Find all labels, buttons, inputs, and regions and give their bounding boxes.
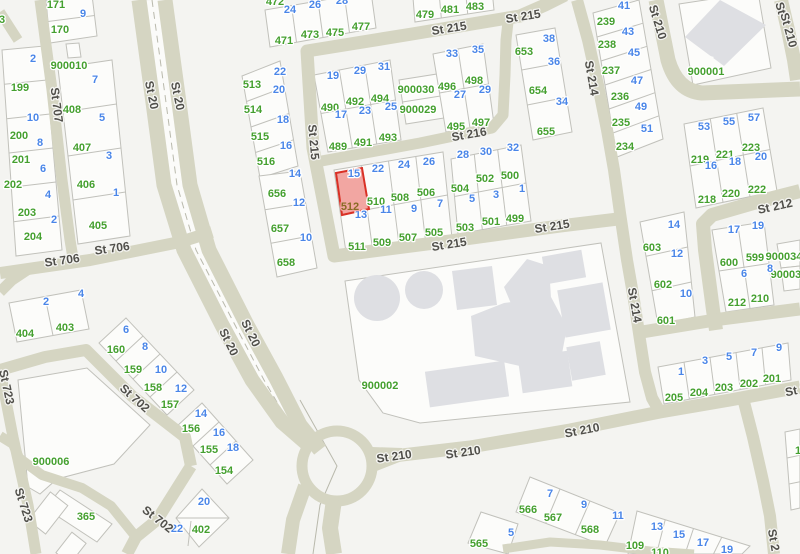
svg-text:203: 203 xyxy=(18,207,36,219)
svg-text:28: 28 xyxy=(457,149,469,161)
svg-text:205: 205 xyxy=(665,392,683,404)
svg-text:159: 159 xyxy=(124,364,142,376)
svg-text:11: 11 xyxy=(612,510,624,522)
svg-text:473: 473 xyxy=(301,29,319,41)
svg-text:1: 1 xyxy=(795,445,800,457)
svg-text:568: 568 xyxy=(581,524,599,536)
svg-text:14: 14 xyxy=(289,168,302,180)
svg-text:900029: 900029 xyxy=(400,104,437,116)
svg-text:509: 509 xyxy=(373,237,391,249)
svg-text:38: 38 xyxy=(543,33,555,45)
svg-text:16: 16 xyxy=(213,427,225,439)
svg-text:32: 32 xyxy=(507,142,519,154)
svg-text:511: 511 xyxy=(348,241,366,253)
svg-text:600: 600 xyxy=(720,257,738,269)
svg-text:599: 599 xyxy=(746,252,764,264)
svg-text:109: 109 xyxy=(626,540,644,552)
svg-text:7: 7 xyxy=(547,488,553,500)
svg-text:1: 1 xyxy=(113,187,119,199)
svg-text:3: 3 xyxy=(106,150,112,162)
svg-text:203: 203 xyxy=(715,382,733,394)
svg-text:26: 26 xyxy=(309,0,321,11)
svg-text:1: 1 xyxy=(678,366,684,378)
svg-text:19: 19 xyxy=(327,70,339,82)
svg-text:29: 29 xyxy=(354,65,366,77)
svg-text:25: 25 xyxy=(385,101,397,113)
svg-text:12: 12 xyxy=(293,197,305,209)
svg-text:6: 6 xyxy=(40,163,46,175)
svg-text:481: 481 xyxy=(441,4,459,16)
svg-text:3: 3 xyxy=(702,355,708,367)
svg-text:218: 218 xyxy=(698,194,716,206)
svg-text:407: 407 xyxy=(73,142,91,154)
svg-text:110: 110 xyxy=(651,547,669,554)
svg-text:10: 10 xyxy=(27,112,39,124)
svg-text:501: 501 xyxy=(482,216,500,228)
svg-text:155: 155 xyxy=(200,444,218,456)
svg-text:34: 34 xyxy=(556,96,569,108)
svg-text:17: 17 xyxy=(335,109,347,121)
svg-text:504: 504 xyxy=(451,183,470,195)
svg-text:35: 35 xyxy=(472,44,484,56)
svg-text:900001: 900001 xyxy=(688,66,725,78)
svg-text:655: 655 xyxy=(537,126,555,138)
svg-text:47: 47 xyxy=(631,75,643,87)
svg-text:157: 157 xyxy=(161,399,179,411)
svg-text:10: 10 xyxy=(155,364,167,376)
svg-text:20: 20 xyxy=(273,84,285,96)
svg-text:36: 36 xyxy=(548,56,560,68)
svg-text:5: 5 xyxy=(508,527,514,539)
svg-text:24: 24 xyxy=(284,4,297,16)
svg-text:515: 515 xyxy=(251,131,269,143)
svg-text:9: 9 xyxy=(80,8,86,20)
svg-text:402: 402 xyxy=(192,524,210,536)
svg-text:14: 14 xyxy=(195,408,208,420)
svg-text:212: 212 xyxy=(728,297,746,309)
svg-text:20: 20 xyxy=(755,151,767,163)
svg-text:503: 503 xyxy=(456,222,474,234)
svg-text:900030: 900030 xyxy=(398,84,435,96)
svg-text:491: 491 xyxy=(354,137,372,149)
svg-text:516: 516 xyxy=(257,156,275,168)
svg-text:204: 204 xyxy=(690,387,709,399)
svg-text:18: 18 xyxy=(277,114,289,126)
svg-text:2: 2 xyxy=(30,53,36,65)
svg-text:479: 479 xyxy=(416,9,434,21)
svg-text:201: 201 xyxy=(12,154,30,166)
svg-text:17: 17 xyxy=(728,224,740,236)
svg-text:603: 603 xyxy=(643,242,661,254)
svg-text:10: 10 xyxy=(680,288,692,300)
svg-text:220: 220 xyxy=(722,188,740,200)
svg-text:19: 19 xyxy=(752,220,764,232)
svg-text:365: 365 xyxy=(77,511,95,523)
svg-text:222: 222 xyxy=(748,184,766,196)
svg-text:3: 3 xyxy=(493,189,499,201)
svg-text:404: 404 xyxy=(16,328,35,340)
svg-text:5: 5 xyxy=(99,112,105,124)
svg-text:15: 15 xyxy=(348,168,360,180)
svg-text:202: 202 xyxy=(4,179,22,191)
svg-text:6: 6 xyxy=(741,268,747,280)
svg-text:9: 9 xyxy=(776,342,782,354)
svg-text:8: 8 xyxy=(142,341,148,353)
svg-text:53: 53 xyxy=(698,121,710,133)
svg-text:8: 8 xyxy=(767,263,773,275)
svg-text:500: 500 xyxy=(501,170,519,182)
svg-text:483: 483 xyxy=(466,1,484,13)
svg-text:27: 27 xyxy=(454,89,466,101)
svg-text:30: 30 xyxy=(480,146,492,158)
svg-text:654: 654 xyxy=(529,85,548,97)
svg-text:471: 471 xyxy=(275,35,293,47)
svg-text:236: 236 xyxy=(611,91,629,103)
svg-text:57: 57 xyxy=(748,112,760,124)
svg-text:406: 406 xyxy=(77,179,95,191)
svg-text:900006: 900006 xyxy=(33,456,70,468)
svg-text:7: 7 xyxy=(92,74,98,86)
svg-text:900034: 900034 xyxy=(766,251,800,263)
svg-text:235: 235 xyxy=(612,117,630,129)
svg-text:658: 658 xyxy=(277,257,295,269)
svg-text:154: 154 xyxy=(215,465,234,477)
svg-text:7: 7 xyxy=(751,347,757,359)
svg-text:8: 8 xyxy=(37,137,43,149)
svg-text:55: 55 xyxy=(723,116,735,128)
svg-text:475: 475 xyxy=(326,27,344,39)
svg-text:513: 513 xyxy=(243,79,261,91)
svg-text:900002: 900002 xyxy=(362,380,399,392)
svg-text:12: 12 xyxy=(175,383,187,395)
svg-text:505: 505 xyxy=(425,227,443,239)
svg-text:43: 43 xyxy=(622,26,634,38)
svg-text:49: 49 xyxy=(635,101,647,113)
svg-text:18: 18 xyxy=(729,156,741,168)
svg-text:41: 41 xyxy=(618,0,630,12)
svg-text:12: 12 xyxy=(671,248,683,260)
svg-text:17: 17 xyxy=(697,537,709,549)
svg-text:13: 13 xyxy=(651,521,663,533)
svg-text:4: 4 xyxy=(45,189,52,201)
svg-text:6: 6 xyxy=(123,324,129,336)
svg-text:602: 602 xyxy=(654,279,672,291)
svg-text:512: 512 xyxy=(341,201,359,213)
svg-text:19: 19 xyxy=(721,544,733,554)
svg-text:160: 160 xyxy=(107,344,125,356)
svg-text:502: 502 xyxy=(476,173,494,185)
svg-text:200: 200 xyxy=(10,130,28,142)
svg-text:23: 23 xyxy=(359,105,371,117)
svg-text:506: 506 xyxy=(417,187,435,199)
svg-text:5: 5 xyxy=(469,193,475,205)
svg-text:239: 239 xyxy=(597,16,615,28)
svg-text:22: 22 xyxy=(372,163,384,175)
svg-text:24: 24 xyxy=(398,159,411,171)
svg-text:29: 29 xyxy=(479,84,491,96)
svg-text:507: 507 xyxy=(399,232,417,244)
svg-text:18: 18 xyxy=(227,442,239,454)
svg-text:493: 493 xyxy=(379,132,397,144)
svg-text:472: 472 xyxy=(266,0,284,8)
svg-text:601: 601 xyxy=(657,315,675,327)
svg-text:2: 2 xyxy=(51,214,57,226)
svg-text:234: 234 xyxy=(616,141,635,153)
svg-text:171: 171 xyxy=(47,0,65,11)
svg-text:7: 7 xyxy=(437,198,443,210)
svg-text:9: 9 xyxy=(581,499,587,511)
svg-text:403: 403 xyxy=(56,322,74,334)
svg-text:33: 33 xyxy=(446,48,458,60)
svg-text:2: 2 xyxy=(43,296,49,308)
svg-text:3: 3 xyxy=(0,14,5,26)
svg-text:653: 653 xyxy=(515,46,533,58)
svg-text:16: 16 xyxy=(280,140,292,152)
svg-text:657: 657 xyxy=(271,223,289,235)
svg-text:5: 5 xyxy=(726,351,732,363)
svg-text:900033: 900033 xyxy=(771,269,800,281)
svg-text:26: 26 xyxy=(423,156,435,168)
svg-text:45: 45 xyxy=(628,47,640,59)
svg-text:28: 28 xyxy=(336,0,348,7)
svg-text:566: 566 xyxy=(519,504,537,516)
svg-text:51: 51 xyxy=(641,123,653,135)
svg-text:238: 238 xyxy=(598,39,616,51)
svg-text:405: 405 xyxy=(89,220,107,232)
svg-text:204: 204 xyxy=(24,231,43,243)
svg-text:565: 565 xyxy=(470,538,488,550)
svg-text:14: 14 xyxy=(668,219,681,231)
svg-text:900010: 900010 xyxy=(51,60,88,72)
svg-text:508: 508 xyxy=(391,192,409,204)
svg-text:202: 202 xyxy=(740,378,758,390)
svg-text:156: 156 xyxy=(182,423,200,435)
svg-text:158: 158 xyxy=(144,382,162,394)
svg-text:1: 1 xyxy=(519,183,525,195)
svg-text:489: 489 xyxy=(329,141,347,153)
svg-text:10: 10 xyxy=(300,232,312,244)
svg-text:9: 9 xyxy=(411,203,417,215)
svg-text:656: 656 xyxy=(268,188,286,200)
svg-text:22: 22 xyxy=(274,66,286,78)
svg-text:199: 199 xyxy=(11,82,29,94)
svg-text:477: 477 xyxy=(352,21,370,33)
svg-text:499: 499 xyxy=(506,213,524,225)
svg-text:11: 11 xyxy=(380,204,392,216)
svg-text:210: 210 xyxy=(751,293,769,305)
svg-text:170: 170 xyxy=(51,24,69,36)
svg-text:237: 237 xyxy=(602,65,620,77)
svg-text:15: 15 xyxy=(673,529,685,541)
svg-text:31: 31 xyxy=(378,61,390,73)
svg-text:201: 201 xyxy=(763,373,781,385)
svg-text:514: 514 xyxy=(244,104,263,116)
svg-text:20: 20 xyxy=(198,496,210,508)
svg-text:16: 16 xyxy=(705,160,717,172)
svg-text:4: 4 xyxy=(78,288,85,300)
svg-text:567: 567 xyxy=(544,512,562,524)
